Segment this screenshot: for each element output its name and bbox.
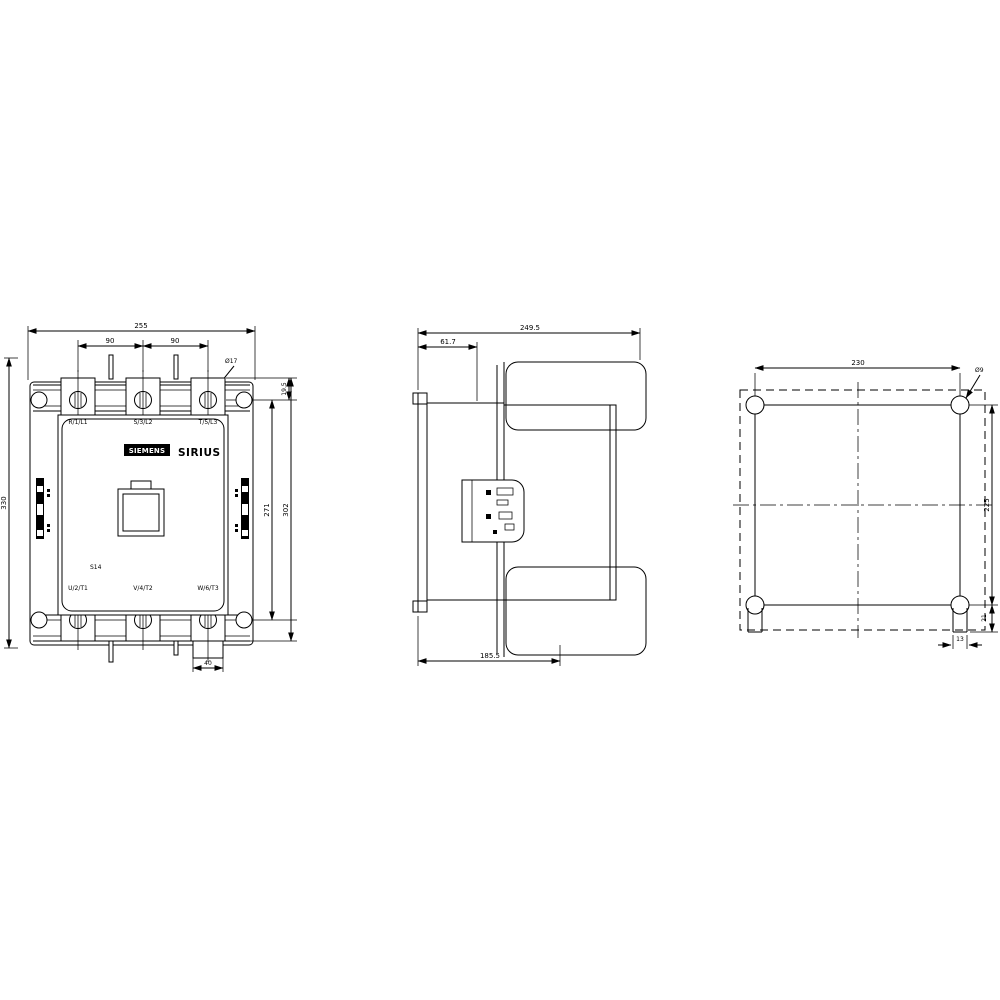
front-view: 255 90 90 330 Ø17 19.5 271 302 40	[0, 322, 297, 672]
dim-terminal-hole: Ø17	[225, 358, 238, 365]
dim-slot-offset: 21	[981, 614, 988, 622]
terminal-label-bottom-1: U/2/T1	[68, 585, 88, 592]
dim-pole-pitch-left: 90	[106, 337, 115, 345]
dimension-drawing-canvas: 255 90 90 330 Ø17 19.5 271 302 40	[0, 0, 1000, 1000]
terminal-label-bottom-2: V/4/T2	[133, 585, 153, 592]
dim-overall-depth: 249.5	[520, 324, 540, 332]
side-outline	[413, 362, 646, 657]
size-label: S14	[90, 564, 102, 571]
dim-mount-height-inner: 271	[263, 503, 271, 516]
series-label: SIRIUS	[178, 447, 221, 459]
dim-lower-depth: 185.5	[480, 652, 500, 660]
dim-hole-spacing-horizontal: 230	[851, 359, 864, 367]
dim-slot-width: 13	[956, 636, 964, 643]
front-aux-terminal-left	[36, 478, 50, 539]
dim-pole-pitch-right: 90	[171, 337, 180, 345]
terminal-label-top-3: T/5/L3	[198, 419, 218, 426]
dim-hole-spacing-vertical: 225	[983, 498, 991, 511]
dim-mount-height-outer: 302	[282, 503, 290, 516]
dim-hole-offset: 19.5	[281, 382, 288, 396]
mounting-pattern	[746, 396, 998, 632]
side-dimension-lines	[418, 328, 640, 666]
dim-front-offset: 61.7	[440, 338, 456, 346]
mounting-view: 230 Ø9 225 21 13	[733, 359, 998, 649]
terminal-label-bottom-3: W/6/T3	[197, 585, 218, 592]
dim-overall-height: 330	[0, 496, 8, 509]
side-coil-connector	[462, 480, 524, 542]
dim-mounting-hole: Ø9	[975, 367, 984, 374]
contactor-dimension-drawing: 255 90 90 330 Ø17 19.5 271 302 40	[0, 0, 1000, 1000]
mounting-device-outline	[740, 390, 985, 630]
front-aux-terminal-right	[235, 478, 249, 539]
brand-logo-text: SIEMENS	[129, 447, 165, 455]
side-view: 249.5 61.7 185.5	[413, 324, 646, 666]
dim-overall-width: 255	[134, 322, 147, 330]
terminal-label-top-2: S/3/L2	[134, 419, 153, 426]
terminal-label-top-1: R/1/L1	[68, 419, 87, 426]
